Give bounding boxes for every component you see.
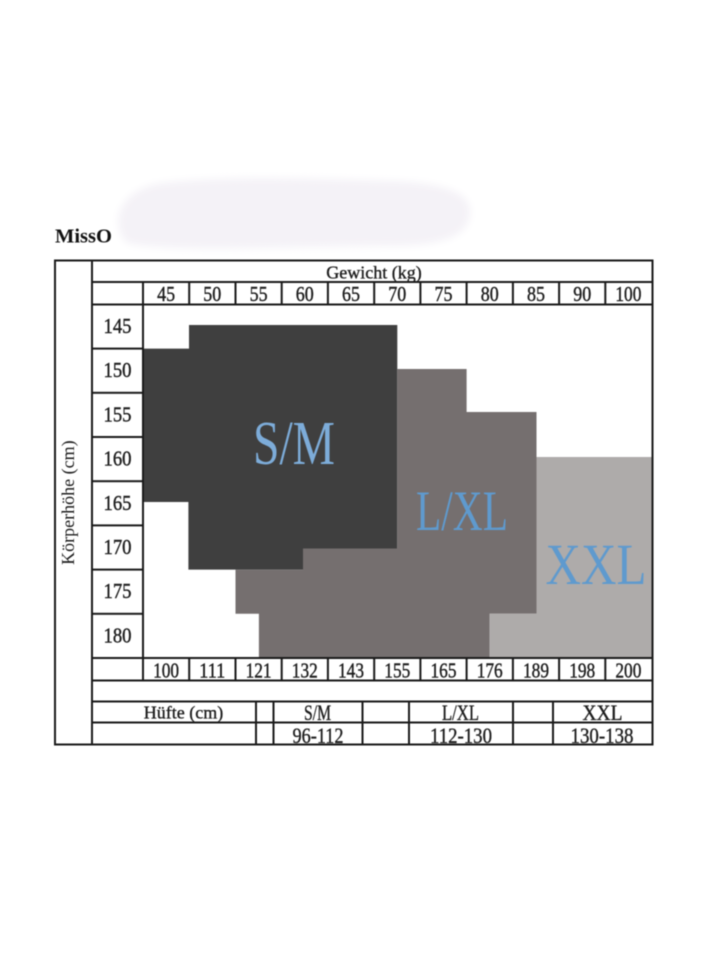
svg-text:200: 200 [615, 659, 641, 683]
svg-text:132: 132 [292, 659, 318, 683]
svg-text:155: 155 [104, 402, 132, 426]
svg-text:50: 50 [203, 282, 221, 306]
svg-text:96-112: 96-112 [293, 723, 344, 748]
svg-text:130-138: 130-138 [571, 723, 634, 748]
svg-text:MissO: MissO [55, 226, 112, 248]
svg-text:176: 176 [477, 659, 503, 683]
svg-text:Gewicht (kg): Gewicht (kg) [326, 263, 421, 284]
svg-text:100: 100 [615, 282, 641, 306]
svg-text:155: 155 [384, 659, 410, 683]
svg-text:70: 70 [388, 282, 406, 306]
svg-text:170: 170 [104, 535, 132, 559]
svg-text:Körperhöhe (cm): Körperhöhe (cm) [58, 440, 79, 564]
svg-text:55: 55 [250, 282, 268, 306]
svg-text:111: 111 [199, 659, 225, 683]
svg-text:143: 143 [338, 659, 364, 683]
svg-text:121: 121 [246, 659, 272, 683]
svg-text:165: 165 [104, 491, 132, 515]
svg-text:XXL: XXL [583, 700, 623, 725]
svg-text:160: 160 [104, 447, 132, 471]
svg-text:S/M: S/M [253, 410, 335, 478]
svg-text:85: 85 [527, 282, 545, 306]
svg-text:189: 189 [523, 659, 549, 683]
svg-text:90: 90 [573, 282, 591, 306]
svg-text:100: 100 [153, 659, 179, 683]
svg-text:175: 175 [104, 579, 132, 603]
svg-text:L/XL: L/XL [442, 700, 479, 725]
svg-text:XXL: XXL [546, 532, 647, 597]
svg-text:65: 65 [342, 282, 360, 306]
svg-text:80: 80 [481, 282, 499, 306]
svg-text:L/XL: L/XL [416, 480, 508, 543]
svg-text:75: 75 [435, 282, 453, 306]
svg-text:112-130: 112-130 [430, 723, 492, 748]
svg-text:180: 180 [104, 623, 132, 647]
svg-text:S/M: S/M [304, 700, 331, 725]
svg-text:198: 198 [569, 659, 595, 683]
svg-text:60: 60 [296, 282, 314, 306]
svg-text:165: 165 [431, 659, 457, 683]
svg-text:145: 145 [104, 314, 132, 338]
svg-text:150: 150 [104, 358, 132, 382]
svg-text:45: 45 [157, 282, 175, 306]
svg-text:Hüfte (cm): Hüfte (cm) [144, 703, 223, 724]
